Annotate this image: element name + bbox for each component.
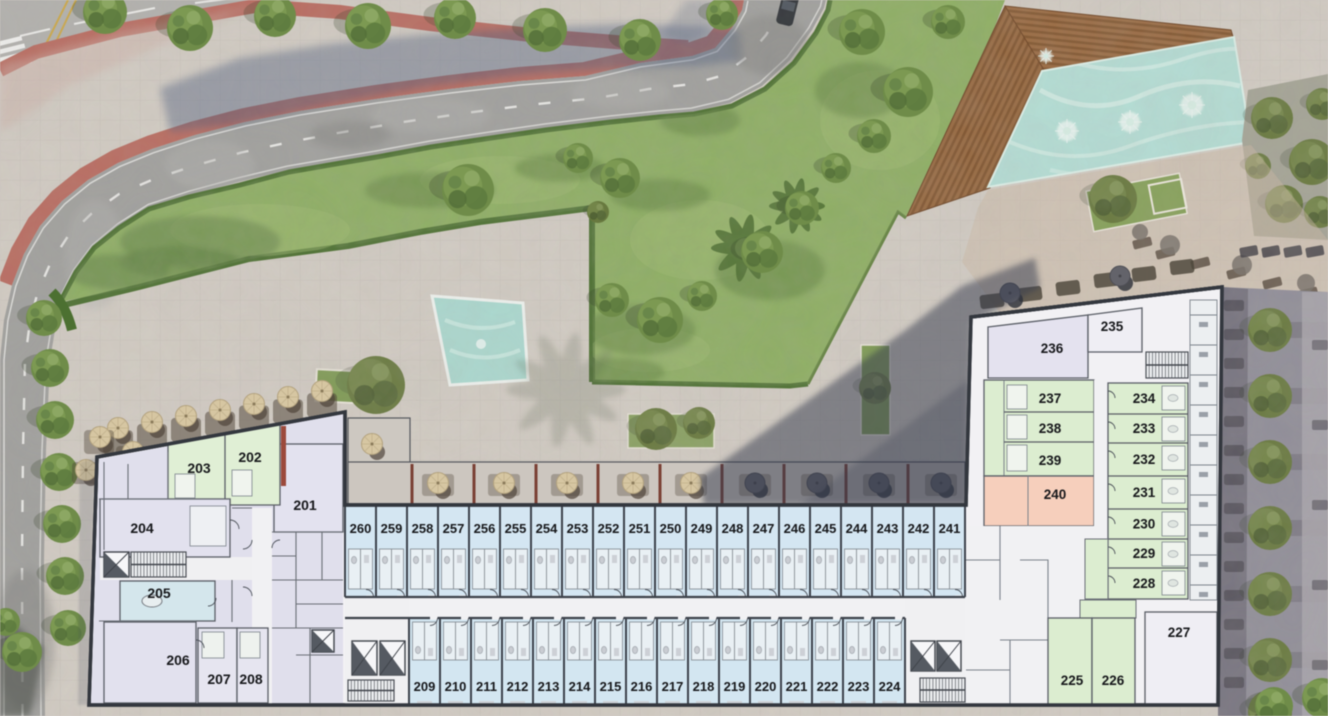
svg-text:243: 243 [877,521,899,536]
svg-text:214: 214 [569,679,591,694]
svg-text:228: 228 [1133,576,1156,591]
svg-text:233: 233 [1133,421,1156,436]
svg-text:244: 244 [846,521,868,536]
svg-text:258: 258 [412,521,434,536]
svg-text:209: 209 [414,679,436,694]
svg-text:217: 217 [662,679,684,694]
svg-text:221: 221 [786,679,808,694]
svg-text:203: 203 [187,460,211,476]
svg-text:255: 255 [505,521,527,536]
svg-text:206: 206 [166,652,190,668]
svg-text:220: 220 [755,679,777,694]
svg-text:260: 260 [350,521,372,536]
svg-text:207: 207 [207,671,231,687]
svg-text:248: 248 [722,521,744,536]
svg-text:229: 229 [1133,546,1156,561]
svg-text:219: 219 [724,679,746,694]
svg-text:232: 232 [1133,452,1156,467]
svg-text:252: 252 [598,521,620,536]
svg-text:205: 205 [147,585,171,601]
svg-text:250: 250 [660,521,682,536]
svg-text:213: 213 [538,679,560,694]
svg-text:249: 249 [691,521,713,536]
svg-text:225: 225 [1061,673,1084,688]
svg-text:212: 212 [507,679,529,694]
svg-text:259: 259 [381,521,403,536]
svg-text:222: 222 [817,679,839,694]
svg-text:210: 210 [445,679,467,694]
svg-text:231: 231 [1133,485,1156,500]
svg-text:211: 211 [476,679,497,694]
svg-text:216: 216 [631,679,653,694]
svg-text:241: 241 [939,521,961,536]
svg-text:204: 204 [130,520,154,536]
svg-text:201: 201 [293,497,317,513]
svg-text:257: 257 [443,521,465,536]
svg-text:208: 208 [239,671,263,687]
svg-text:223: 223 [848,679,870,694]
svg-text:218: 218 [693,679,715,694]
svg-text:245: 245 [815,521,837,536]
svg-text:251: 251 [629,521,651,536]
svg-text:230: 230 [1133,517,1156,532]
svg-text:253: 253 [567,521,589,536]
svg-text:235: 235 [1101,319,1124,334]
svg-text:256: 256 [474,521,496,536]
svg-text:247: 247 [753,521,775,536]
svg-text:202: 202 [238,449,262,465]
svg-text:254: 254 [536,521,558,536]
svg-text:224: 224 [879,679,901,694]
svg-text:239: 239 [1039,453,1062,468]
svg-text:237: 237 [1039,391,1062,406]
svg-text:234: 234 [1133,391,1156,406]
svg-text:226: 226 [1102,673,1125,688]
svg-text:242: 242 [908,521,930,536]
svg-text:246: 246 [784,521,806,536]
svg-text:240: 240 [1044,487,1067,502]
svg-text:227: 227 [1168,625,1191,640]
svg-text:215: 215 [600,679,622,694]
svg-text:236: 236 [1041,341,1064,356]
svg-text:238: 238 [1039,421,1062,436]
